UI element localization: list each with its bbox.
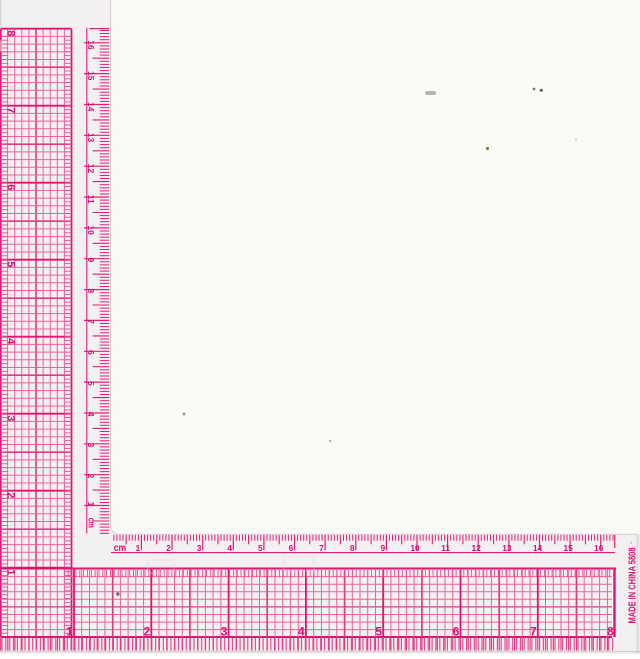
- svg-text:15: 15: [563, 543, 573, 553]
- svg-text:16: 16: [594, 543, 604, 553]
- svg-text:6: 6: [4, 184, 16, 190]
- svg-text:1: 1: [4, 569, 16, 575]
- svg-text:1: 1: [135, 543, 140, 553]
- svg-text:10: 10: [86, 225, 96, 235]
- svg-text:4: 4: [227, 543, 232, 553]
- svg-text:cm: cm: [86, 518, 97, 528]
- svg-text:16: 16: [86, 40, 96, 50]
- svg-text:5: 5: [4, 261, 16, 267]
- svg-text:4: 4: [86, 412, 96, 417]
- svg-text:2: 2: [4, 492, 16, 498]
- svg-text:8: 8: [4, 30, 16, 36]
- svg-text:5: 5: [258, 543, 263, 553]
- svg-text:2: 2: [86, 474, 96, 479]
- svg-text:11: 11: [86, 195, 96, 204]
- svg-text:12: 12: [86, 164, 96, 174]
- svg-text:8: 8: [86, 288, 96, 293]
- svg-text:5: 5: [86, 381, 96, 386]
- svg-text:3: 3: [197, 543, 202, 553]
- svg-text:15: 15: [86, 71, 96, 81]
- svg-text:8: 8: [350, 543, 355, 553]
- svg-text:cm: cm: [114, 543, 127, 554]
- svg-text:14: 14: [86, 102, 96, 112]
- svg-text:2: 2: [143, 625, 150, 639]
- svg-text:14: 14: [533, 543, 543, 553]
- svg-text:7: 7: [86, 319, 96, 324]
- svg-text:9: 9: [380, 543, 385, 553]
- svg-text:3: 3: [221, 625, 228, 639]
- svg-text:7: 7: [4, 107, 16, 113]
- svg-text:MADE IN CHINA 5808: MADE IN CHINA 5808: [627, 547, 639, 623]
- svg-text:7: 7: [319, 543, 324, 553]
- svg-text:8: 8: [607, 625, 614, 639]
- svg-text:3: 3: [4, 415, 16, 421]
- svg-text:1: 1: [66, 625, 73, 639]
- svg-text:5: 5: [375, 625, 382, 639]
- svg-text:9: 9: [86, 258, 96, 263]
- svg-text:6: 6: [289, 543, 294, 553]
- svg-text:6: 6: [453, 625, 460, 639]
- svg-text:4: 4: [298, 625, 305, 639]
- svg-text:12: 12: [472, 543, 482, 553]
- svg-text:6: 6: [86, 350, 96, 355]
- svg-text:13: 13: [86, 133, 96, 143]
- svg-text:1: 1: [86, 502, 96, 507]
- svg-text:4: 4: [4, 338, 16, 345]
- svg-text:10: 10: [410, 543, 420, 553]
- svg-text:11: 11: [441, 543, 450, 553]
- svg-text:13: 13: [502, 543, 512, 553]
- svg-text:7: 7: [530, 625, 537, 639]
- svg-text:3: 3: [86, 443, 96, 448]
- svg-text:2: 2: [166, 543, 171, 553]
